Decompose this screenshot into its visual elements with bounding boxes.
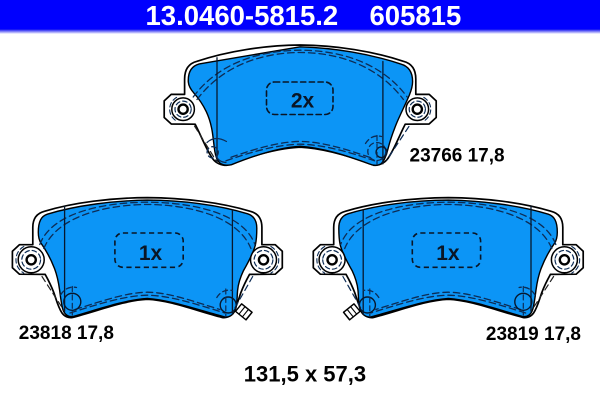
- svg-text:2x: 2x: [291, 90, 315, 113]
- svg-text:1x: 1x: [139, 242, 163, 265]
- svg-text:131,5 x 57,3: 131,5 x 57,3: [244, 361, 366, 386]
- svg-text:23819 17,8: 23819 17,8: [486, 324, 581, 345]
- svg-text:23818 17,8: 23818 17,8: [19, 323, 114, 344]
- svg-text:23766 17,8: 23766 17,8: [410, 146, 505, 167]
- svg-text:1x: 1x: [436, 242, 460, 265]
